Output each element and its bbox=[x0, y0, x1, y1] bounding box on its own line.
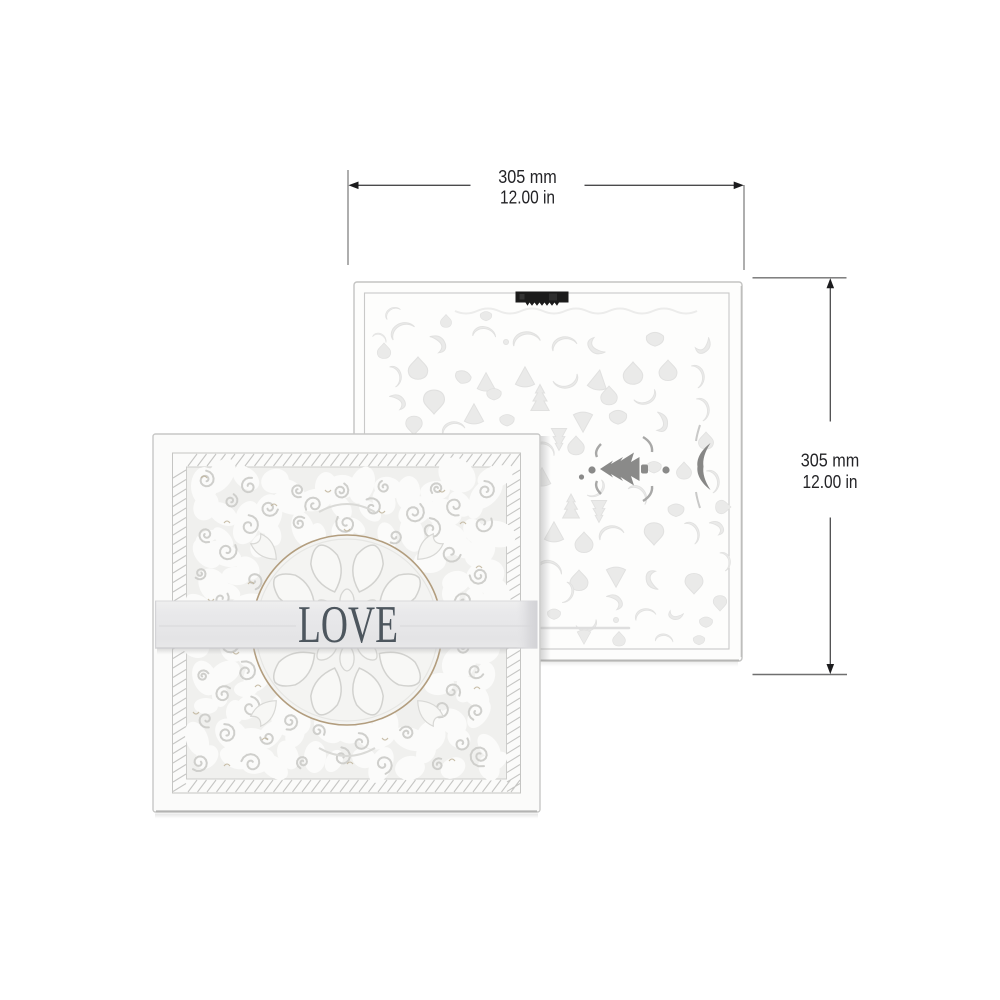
svg-text:12.00 in: 12.00 in bbox=[803, 471, 858, 492]
svg-text:12.00 in: 12.00 in bbox=[500, 187, 555, 208]
svg-text:LOVE: LOVE bbox=[298, 596, 398, 654]
svg-text:305 mm: 305 mm bbox=[801, 450, 860, 471]
svg-text:305 mm: 305 mm bbox=[498, 166, 557, 187]
